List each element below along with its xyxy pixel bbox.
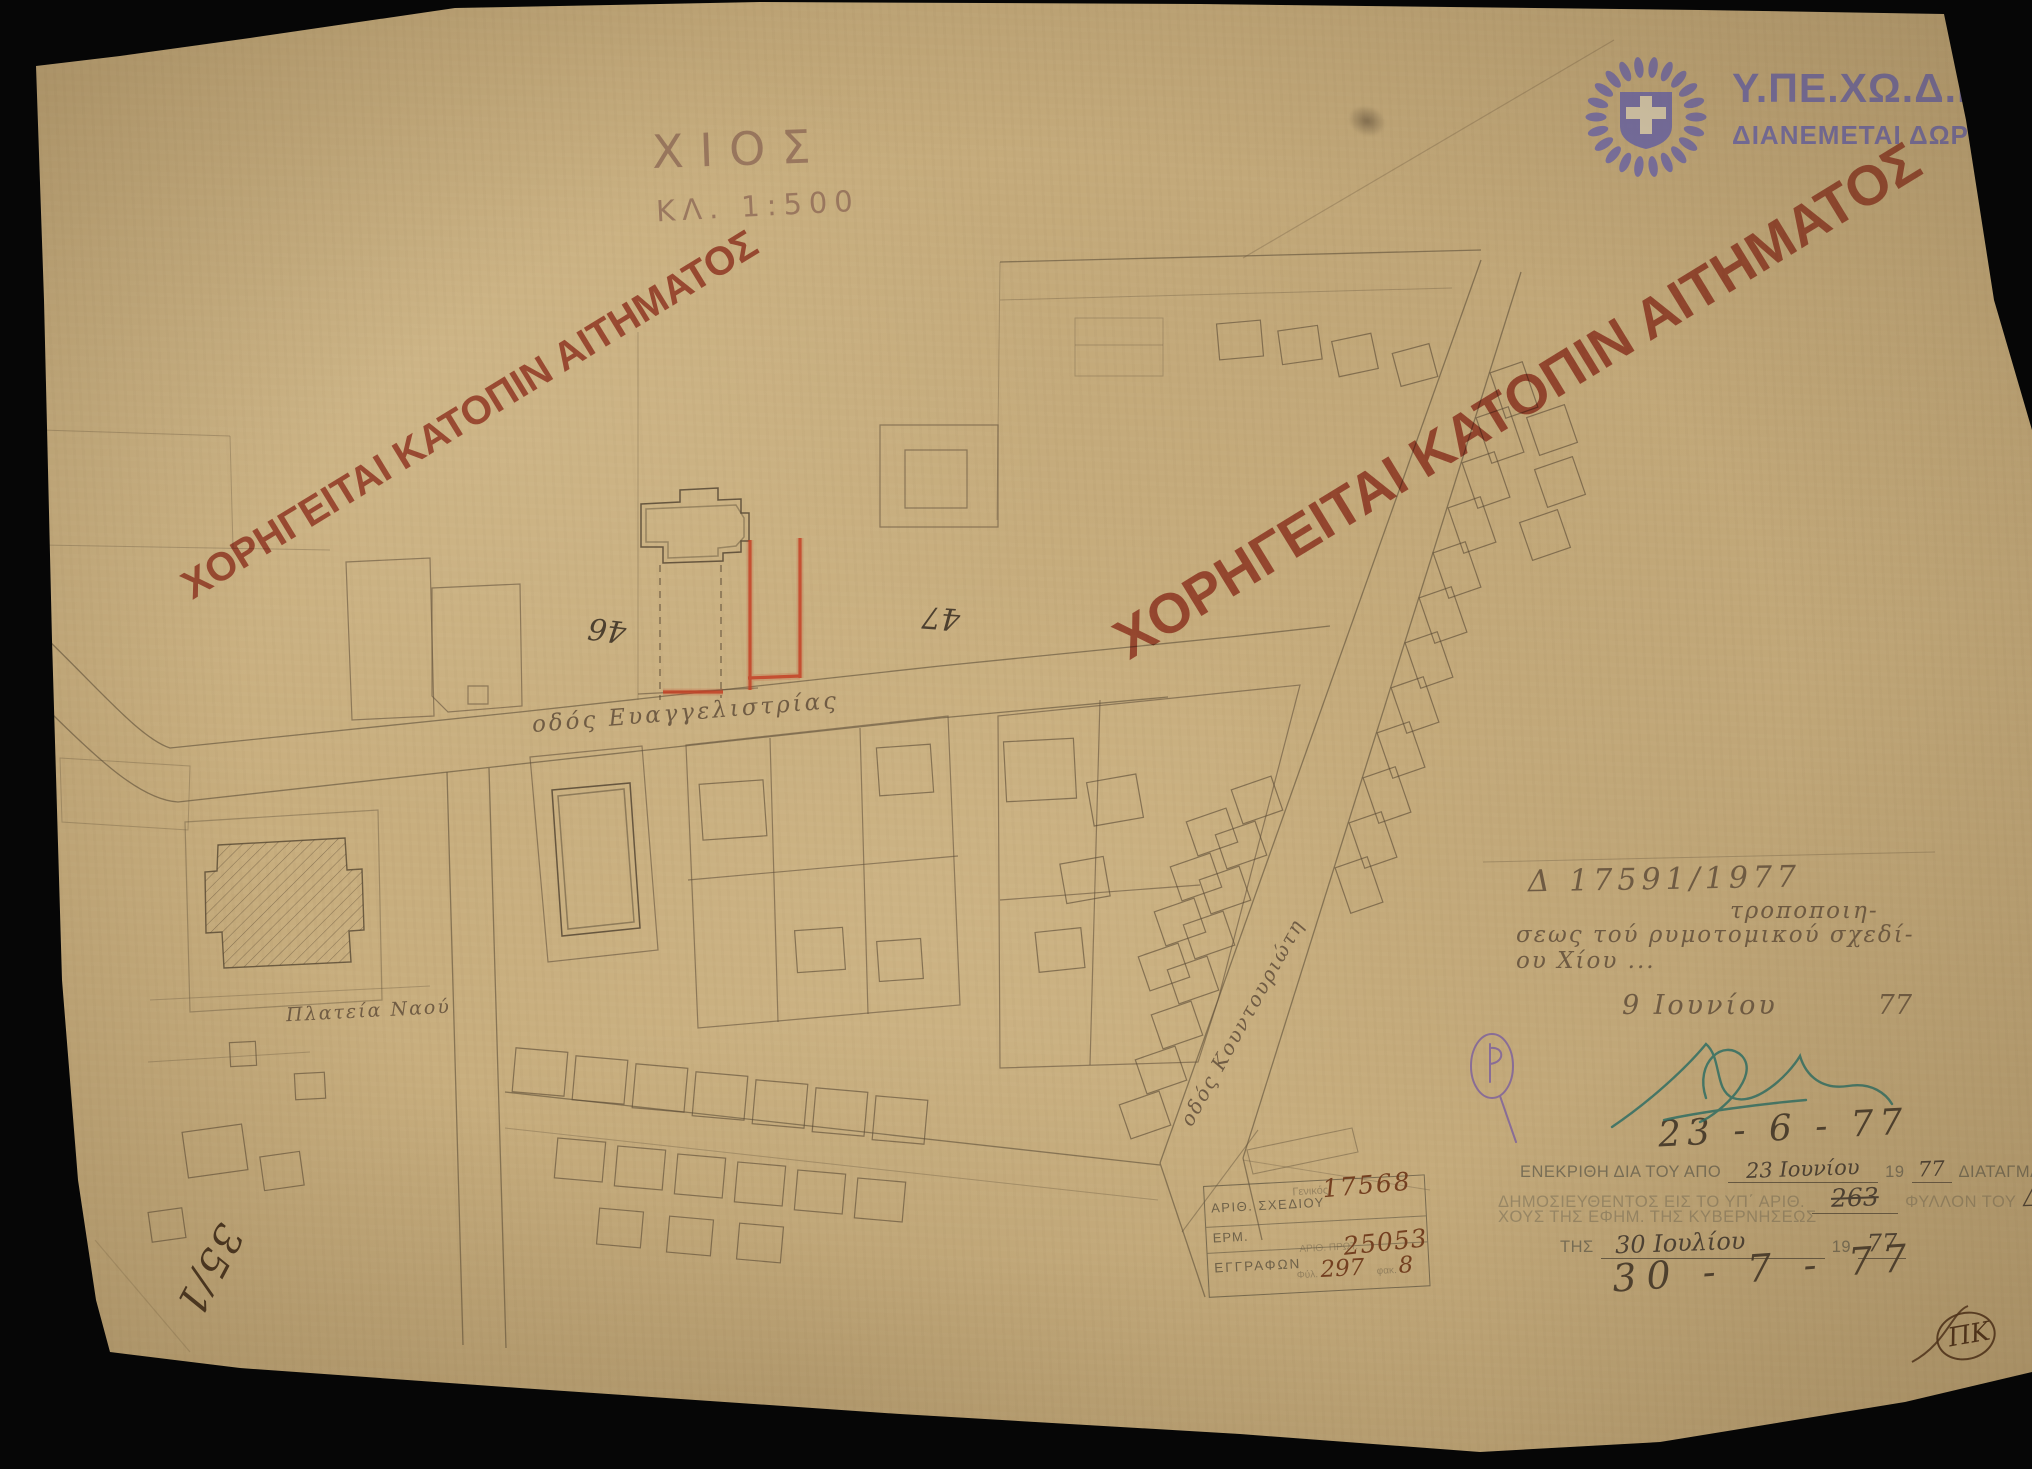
stamp-l2-numberline: 263 [1812, 1184, 1898, 1214]
registry-file-label: φακ. [1376, 1265, 1397, 1277]
house-outline [1520, 510, 1571, 561]
house-outline [260, 1151, 304, 1190]
house-outline [872, 1096, 928, 1144]
stamp-l1-prefix: ΕΝΕΚΡΙΘΗ ΔΙΑ ΤΟΥ ΑΠΟ [1520, 1163, 1721, 1182]
church-building [205, 838, 364, 968]
house-outline [854, 1178, 905, 1222]
house-outline [667, 1216, 714, 1256]
house-outline [1170, 853, 1221, 901]
wreath-leaf-icon [1587, 96, 1610, 111]
wreath-leaf-icon [1633, 155, 1645, 177]
house-outline [1035, 928, 1085, 973]
registry-folio-label: Φύλ. [1297, 1269, 1319, 1281]
house-outline [512, 1048, 568, 1096]
stamp-l1-year-hw: 77 [1918, 1157, 1946, 1182]
house-outline [877, 939, 924, 982]
decree-note-line1: Δ 17591/1977 [1528, 860, 1802, 900]
stamp-l4-prefix: ΤΗΣ [1560, 1238, 1594, 1257]
registry-folio-value: 297 [1320, 1255, 1365, 1283]
red-correction-lines [663, 538, 800, 692]
house-outline [148, 1208, 186, 1242]
plot-number-46: 46 [586, 610, 628, 649]
wreath-leaf-icon [1647, 56, 1659, 78]
house-outline [1060, 856, 1110, 903]
house-outline [1135, 1046, 1186, 1094]
house-outline [1391, 677, 1439, 733]
plot-number-47: 47 [921, 599, 962, 637]
house-outline [734, 1162, 785, 1206]
stamp-l3-text: ΧΟΥΣ ΤΗΣ ΕΦΗΜ. ΤΗΣ ΚΥΒΕΡΝΗΣΕΩΣ [1498, 1208, 1817, 1227]
house-outline [294, 1072, 325, 1100]
house-outline [1332, 333, 1379, 377]
wreath-leaf-icon [1686, 113, 1707, 122]
house-outline [737, 1223, 784, 1263]
stamp-l1-year-prefix: 19 [1885, 1163, 1904, 1182]
house-outline [1119, 1091, 1170, 1139]
house-outline [229, 1041, 256, 1066]
house-outline [1535, 457, 1586, 508]
house-outline [1003, 738, 1076, 802]
house-outline [1183, 911, 1234, 959]
scanner-bed: { "scan": { "title": "ΧΙΟΣ", "scale": "Κ… [0, 0, 2032, 1469]
wreath-leaf-icon [1683, 124, 1706, 139]
house-outline [1217, 320, 1264, 360]
stamp-l1-date-hw: 23 Ιουνίου [1746, 1155, 1860, 1183]
registry-row1-label: ΑΡΙΘ. ΣΧΕΔΙΟΥ [1211, 1195, 1325, 1216]
stamp-l2-number-hw: 263 [1831, 1182, 1880, 1213]
house-outline [674, 1154, 725, 1198]
note-date: 9 Ιουνίου [1622, 990, 1778, 1021]
house-outline [1363, 767, 1411, 823]
house-outline [876, 744, 933, 796]
house-outline [1199, 866, 1250, 914]
stamp-l1-dateline: 23 Ιουνίου [1728, 1158, 1878, 1183]
house-outline [1392, 344, 1438, 387]
decree-note-line4: ου Χίου ... [1516, 948, 1656, 974]
wreath-leaf-icon [1633, 56, 1645, 78]
house-outline [1154, 898, 1205, 946]
house-outline [1278, 325, 1322, 364]
ministry-name: Υ.ΠΕ.ΧΩ.Δ.Ε. [1732, 68, 1998, 109]
registry-box: ΑΡΙΘ. ΣΧΕΔΙΟΥ Γενικός 17568 ΕΡΜ. ΕΓΓΡΑΦΩ… [1203, 1174, 1431, 1297]
paper-crease [1243, 40, 1614, 258]
wreath-leaf-icon [1658, 151, 1675, 174]
stamp-l2-mid: ΦΥΛΛΟΝ ΤΟΥ [1905, 1193, 2016, 1212]
decree-note-line2: τροποποιη- [1730, 898, 1879, 924]
registry-file-value: 8 [1398, 1252, 1414, 1279]
ministry-emblem-icon [1586, 56, 1707, 177]
house-outline [794, 1170, 845, 1214]
stamp-l2-letter-hw: Δ [2023, 1183, 2032, 1213]
house-outline [795, 927, 846, 972]
house-outline [1167, 956, 1218, 1004]
dashed-plot-lines [660, 565, 721, 700]
house-outline [1419, 587, 1467, 643]
house-outline [1349, 812, 1397, 868]
house-outline [1405, 632, 1453, 688]
house-outline [632, 1064, 688, 1112]
house-outline [1186, 808, 1237, 856]
house-outline [699, 780, 767, 840]
stamp-l1-suffix: ΔΙΑΤΑΓΜΑΤΟΣ [1959, 1163, 2032, 1182]
house-outline [1087, 774, 1144, 826]
house-outline [1151, 1001, 1202, 1049]
stamp-l1-yearline: 77 [1912, 1158, 1952, 1183]
house-outline [1377, 722, 1425, 778]
house-outline [614, 1146, 665, 1190]
wreath-leaf-icon [1617, 151, 1634, 174]
house-outline [572, 1056, 628, 1104]
note-date-year: 77 [1878, 990, 1912, 1021]
map-sheet: ΧΟΡΗΓΕΙΤΑΙ ΚΑΤΟΠΙΝ ΑΙΤΗΜΑΤΟΣ ΧΟΡΗΓΕΙΤΑΙ … [0, 0, 2032, 1469]
construction-lines [42, 262, 1935, 1200]
block-outlines [185, 425, 1300, 1068]
house-outline [1215, 821, 1266, 869]
stamp-line-3: ΧΟΥΣ ΤΗΣ ΕΦΗΜ. ΤΗΣ ΚΥΒΕΡΝΗΣΕΩΣ [1498, 1208, 1817, 1227]
house-outline [182, 1124, 248, 1178]
decree-note-line3: σεως τού ρυμοτομικού σχεδί- [1516, 922, 1915, 948]
stamp-line-1: ΕΝΕΚΡΙΘΗ ΔΙΑ ΤΟΥ ΑΠΟ 23 Ιουνίου 19 77 ΔΙ… [1520, 1158, 2032, 1183]
sheet-title: ΧΙΟΣ [651, 123, 827, 175]
house-outline [1335, 857, 1383, 913]
wreath-leaf-icon [1617, 60, 1634, 83]
wreath-leaf-icon [1647, 155, 1659, 177]
registry-row2-label: ΕΡΜ. [1212, 1229, 1249, 1246]
house-outline [692, 1072, 748, 1120]
note-date-row: 9 Ιουνίου 77 [1622, 990, 1912, 1021]
distribution-note: ΔΙΑΝΕΜΕΤΑΙ ΔΩΡΕΑΝ [1732, 122, 2027, 148]
house-outline [597, 1208, 644, 1248]
wreath-leaf-icon [1658, 60, 1675, 83]
registry-row3-label: ΕΓΓΡΑΦΩΝ [1214, 1256, 1302, 1276]
wreath-leaf-icon [1587, 124, 1610, 139]
house-outline [554, 1138, 605, 1182]
wreath-leaf-icon [1683, 96, 1706, 111]
house-outline [1138, 943, 1189, 991]
wreath-leaf-icon [1586, 113, 1607, 122]
